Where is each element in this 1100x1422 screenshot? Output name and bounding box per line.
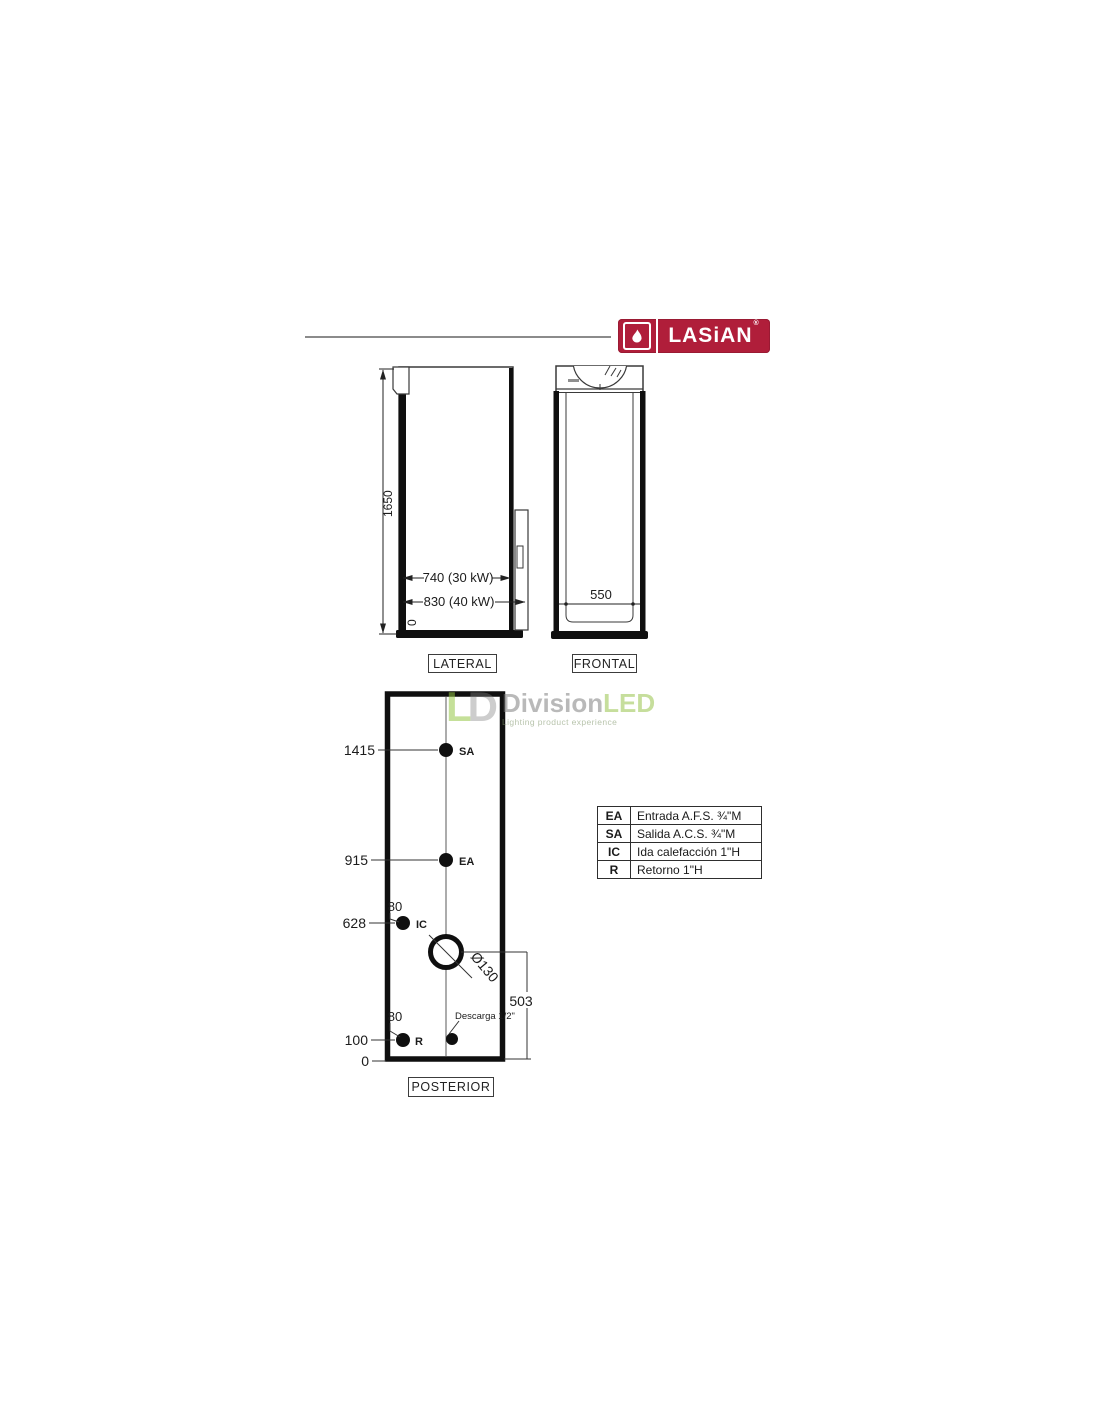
ea-connection-point: [439, 853, 453, 867]
frontal-view: 550: [551, 334, 648, 639]
table-row: SA Salida A.C.S. ¾"M: [598, 825, 762, 843]
sa-point-label: SA: [459, 746, 474, 758]
lateral-base: [396, 630, 523, 638]
legend-desc: Retorno 1"H: [631, 861, 762, 879]
depth-30kw-label: 740 (30 kW): [423, 570, 494, 585]
lateral-height-label: 1650: [381, 490, 395, 517]
r-point-label: R: [415, 1036, 423, 1048]
legend-desc: Entrada A.F.S. ¾"M: [631, 807, 762, 825]
table-row: R Retorno 1"H: [598, 861, 762, 879]
r-offset-label: 80: [388, 1009, 402, 1024]
burner-panel: [515, 510, 528, 630]
r-connection-point: [396, 1033, 410, 1047]
lateral-zero-label: 0: [405, 619, 419, 626]
ic-point-label: IC: [416, 919, 427, 931]
legend-desc: Ida calefacción 1"H: [631, 843, 762, 861]
sa-connection-point: [439, 743, 453, 757]
frontal-base: [551, 631, 648, 639]
legend-desc: Salida A.C.S. ¾"M: [631, 825, 762, 843]
page: LASiAN® 1650 0: [0, 0, 1100, 1422]
legend-code: SA: [598, 825, 631, 843]
legend-code: IC: [598, 843, 631, 861]
lateral-view-label: LATERAL: [428, 654, 497, 673]
frontal-detail-mark: [568, 379, 579, 382]
ea-height-label: 915: [345, 852, 369, 868]
ic-height-label: 628: [343, 915, 367, 931]
burner-handle: [517, 546, 523, 568]
connections-legend-table: EA Entrada A.F.S. ¾"M SA Salida A.C.S. ¾…: [597, 806, 762, 879]
frontal-fan-circle: [573, 334, 627, 388]
frontal-width-label: 550: [590, 587, 612, 602]
ic-offset-label: 80: [388, 899, 402, 914]
frontal-view-label: FRONTAL: [572, 654, 637, 673]
posterior-zero-label: 0: [361, 1053, 369, 1069]
depth-40kw-label: 830 (40 kW): [424, 594, 495, 609]
drain-point: [446, 1033, 458, 1045]
frontal-right-bar: [640, 391, 646, 632]
ea-point-label: EA: [459, 856, 474, 868]
table-row: EA Entrada A.F.S. ¾"M: [598, 807, 762, 825]
sa-height-label: 1415: [344, 742, 375, 758]
legend-code: R: [598, 861, 631, 879]
frontal-left-bar: [554, 391, 560, 632]
table-row: IC Ida calefacción 1"H: [598, 843, 762, 861]
ic-connection-point: [396, 916, 410, 930]
posterior-view-label: POSTERIOR: [408, 1077, 494, 1097]
posterior-view: SA EA IC R Ø130 503: [343, 694, 535, 1069]
r-height-label: 100: [345, 1032, 369, 1048]
flue-height-label: 503: [509, 993, 533, 1009]
lateral-flue-stub: [393, 367, 409, 394]
lateral-view: 1650 0 740 (30 kW) 830 (40 kW): [379, 367, 528, 638]
legend-code: EA: [598, 807, 631, 825]
drain-label: Descarga 1/2": [455, 1011, 515, 1022]
technical-drawing: 1650 0 740 (30 kW) 830 (40 kW): [0, 0, 1100, 1422]
